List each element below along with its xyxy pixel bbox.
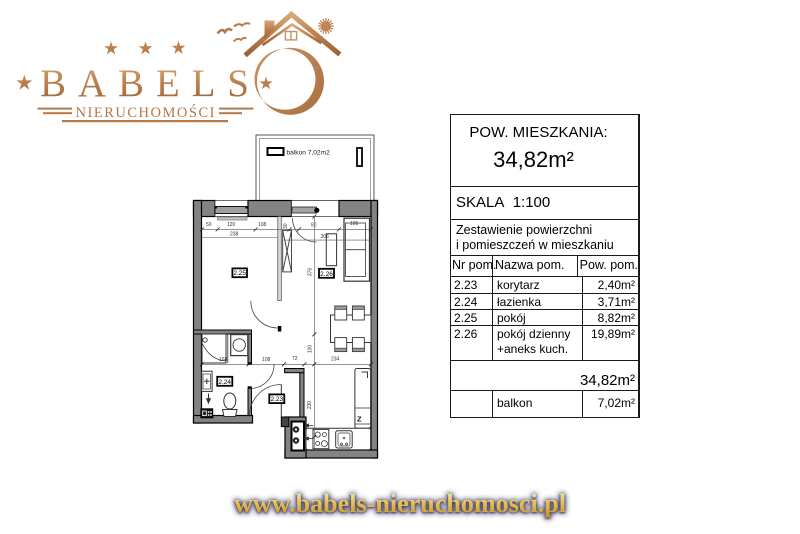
svg-text:2.24: 2.24: [218, 379, 231, 386]
svg-text:80: 80: [311, 223, 317, 229]
svg-text:50: 50: [206, 222, 212, 228]
svg-text:306: 306: [321, 234, 330, 240]
svg-text:Z: Z: [357, 415, 362, 424]
svg-text:234: 234: [331, 357, 340, 363]
svg-text:100: 100: [308, 345, 314, 354]
svg-text:108: 108: [262, 357, 271, 363]
svg-text:108: 108: [258, 222, 267, 228]
svg-text:72: 72: [292, 356, 298, 362]
svg-text:106: 106: [350, 221, 359, 227]
svg-text:NIERUCHOMOŚCI: NIERUCHOMOŚCI: [76, 104, 215, 121]
svg-text:168: 168: [219, 357, 228, 363]
svg-text:30: 30: [283, 223, 289, 229]
svg-text:2.26: 2.26: [320, 271, 333, 278]
svg-text:120: 120: [227, 222, 236, 228]
svg-text:238: 238: [230, 232, 239, 238]
svg-text:balkon 7,02m2: balkon 7,02m2: [287, 149, 331, 156]
svg-text:BABELS: BABELS: [40, 62, 249, 105]
svg-text:230: 230: [307, 401, 313, 410]
svg-text:2.23: 2.23: [270, 396, 283, 403]
svg-text:2.25: 2.25: [233, 270, 246, 277]
svg-text:www.babels-nieruchomosci.pl: www.babels-nieruchomosci.pl: [234, 489, 566, 518]
svg-text:376: 376: [308, 268, 314, 277]
